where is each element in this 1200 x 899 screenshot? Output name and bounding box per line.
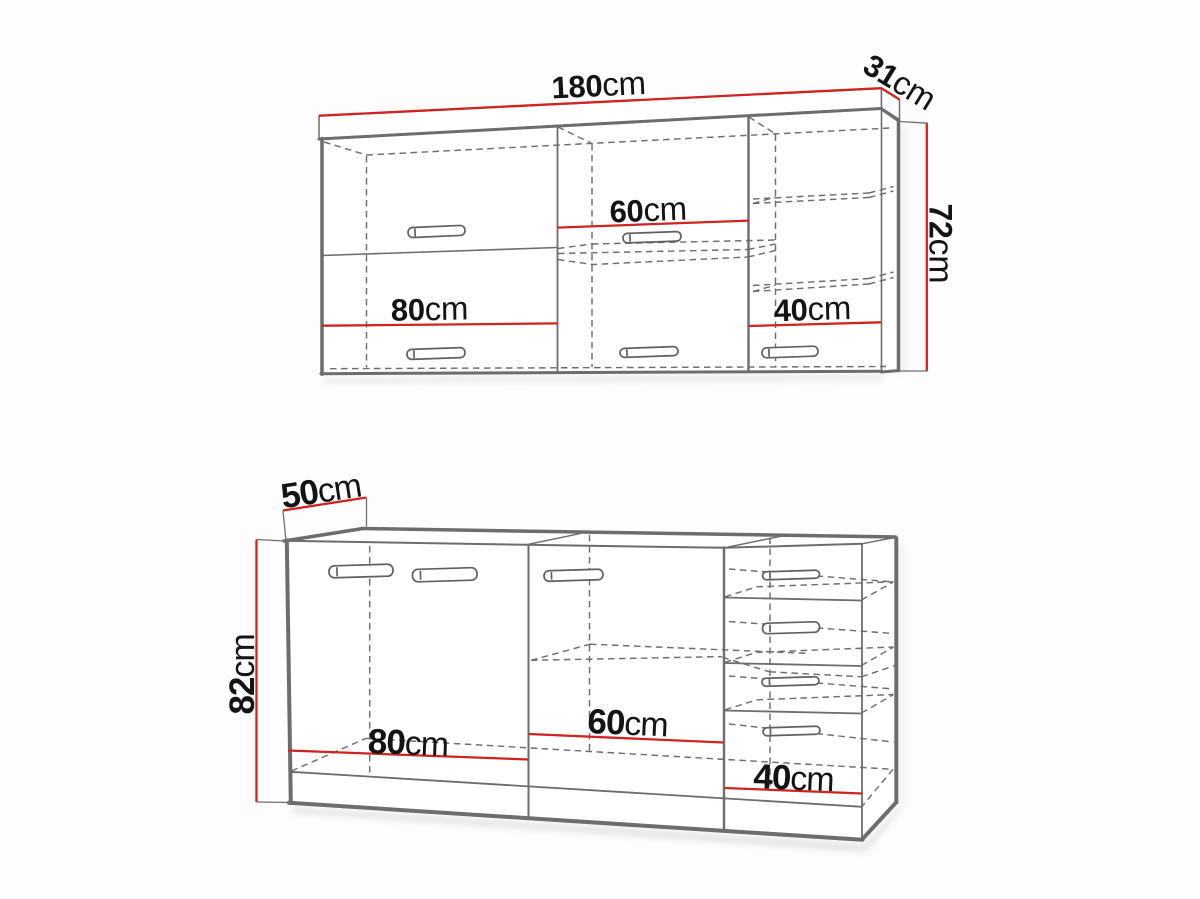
svg-text:60cm: 60cm [587, 702, 669, 744]
svg-text:80cm: 80cm [367, 722, 449, 764]
svg-text:60cm: 60cm [609, 190, 688, 230]
svg-text:40cm: 40cm [753, 757, 835, 799]
svg-text:40cm: 40cm [773, 289, 851, 328]
svg-text:180cm: 180cm [551, 64, 647, 106]
svg-text:72cm: 72cm [921, 204, 959, 284]
svg-text:80cm: 80cm [390, 289, 468, 327]
svg-text:82cm: 82cm [223, 634, 262, 714]
